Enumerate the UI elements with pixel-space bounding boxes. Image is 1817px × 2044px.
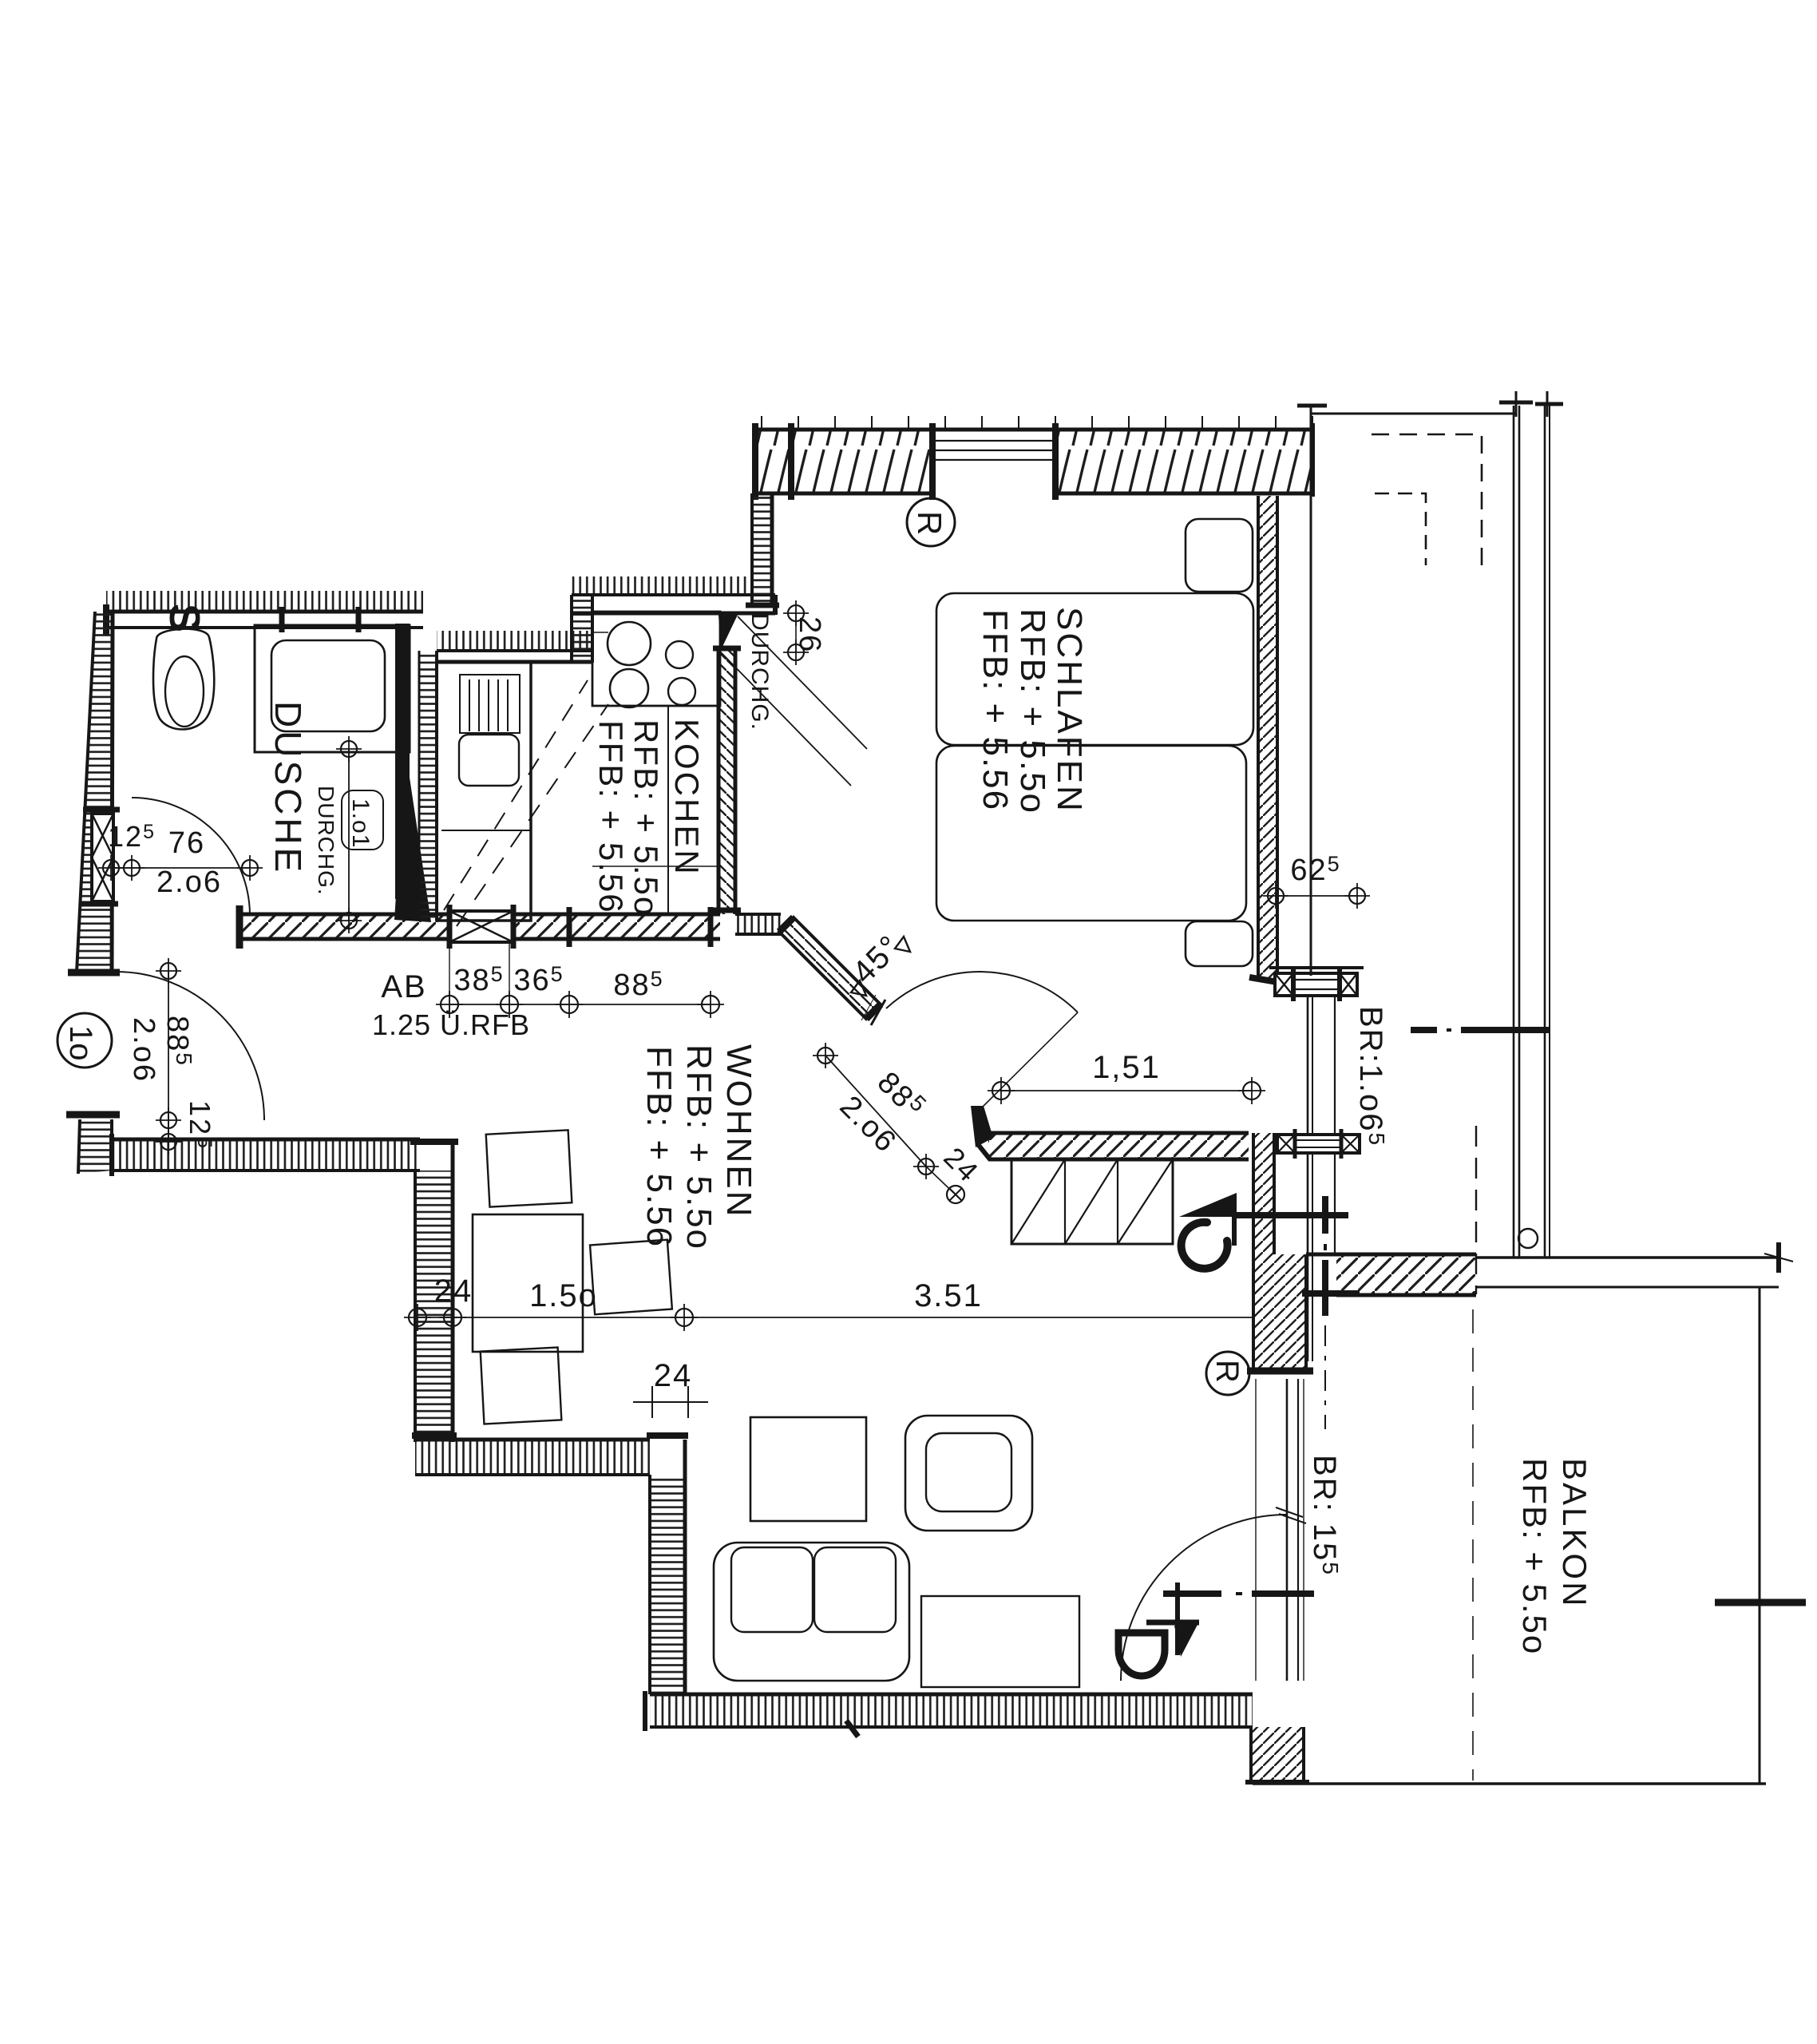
svg-text:FFB: + 5.56: FFB: + 5.56: [592, 720, 630, 914]
svg-text:1o: 1o: [63, 1025, 98, 1061]
svg-text:RFB: + 5.5o: RFB: + 5.5o: [627, 719, 665, 917]
svg-text:1.5o: 1.5o: [529, 1278, 598, 1313]
svg-text:1.o1: 1.o1: [347, 798, 374, 848]
svg-text:26: 26: [793, 616, 826, 653]
svg-text:RFB: + 5.5o: RFB: + 5.5o: [679, 1044, 718, 1250]
svg-text:SCHLAFEN: SCHLAFEN: [1050, 607, 1089, 814]
svg-text:DUSCHE: DUSCHE: [267, 701, 309, 875]
svg-text:R: R: [1209, 1360, 1245, 1383]
svg-text:3.51: 3.51: [914, 1278, 983, 1313]
svg-text:FFB: + 5.56: FFB: + 5.56: [976, 609, 1015, 811]
svg-text:RFB: + 5.5o: RFB: + 5.5o: [1516, 1458, 1554, 1655]
svg-text:BR:1.o65: BR:1.o65: [1353, 1006, 1389, 1147]
svg-text:RFB: + 5.5o: RFB: + 5.5o: [1013, 608, 1052, 814]
svg-text:WOHNEN: WOHNEN: [719, 1044, 758, 1218]
svg-text:DURCHG.: DURCHG.: [746, 613, 773, 731]
svg-text:FFB: + 5.56: FFB: + 5.56: [639, 1046, 679, 1248]
svg-text:R: R: [911, 511, 948, 535]
svg-text:24: 24: [654, 1358, 693, 1393]
svg-text:1,51: 1,51: [1092, 1050, 1161, 1085]
svg-text:BALKON: BALKON: [1556, 1458, 1593, 1608]
svg-text:1.25 Ü.RFB: 1.25 Ü.RFB: [372, 1008, 530, 1041]
svg-text:76: 76: [168, 826, 205, 860]
svg-text:2.o6: 2.o6: [127, 1017, 160, 1083]
svg-text:KOCHEN: KOCHEN: [668, 719, 706, 877]
svg-text:AB: AB: [381, 969, 426, 1004]
svg-text:DURCHG.: DURCHG.: [314, 786, 338, 896]
svg-text:BR: 155: BR: 155: [1307, 1455, 1343, 1576]
svg-text:24: 24: [434, 1274, 473, 1309]
svg-text:2.o6: 2.o6: [156, 866, 222, 899]
